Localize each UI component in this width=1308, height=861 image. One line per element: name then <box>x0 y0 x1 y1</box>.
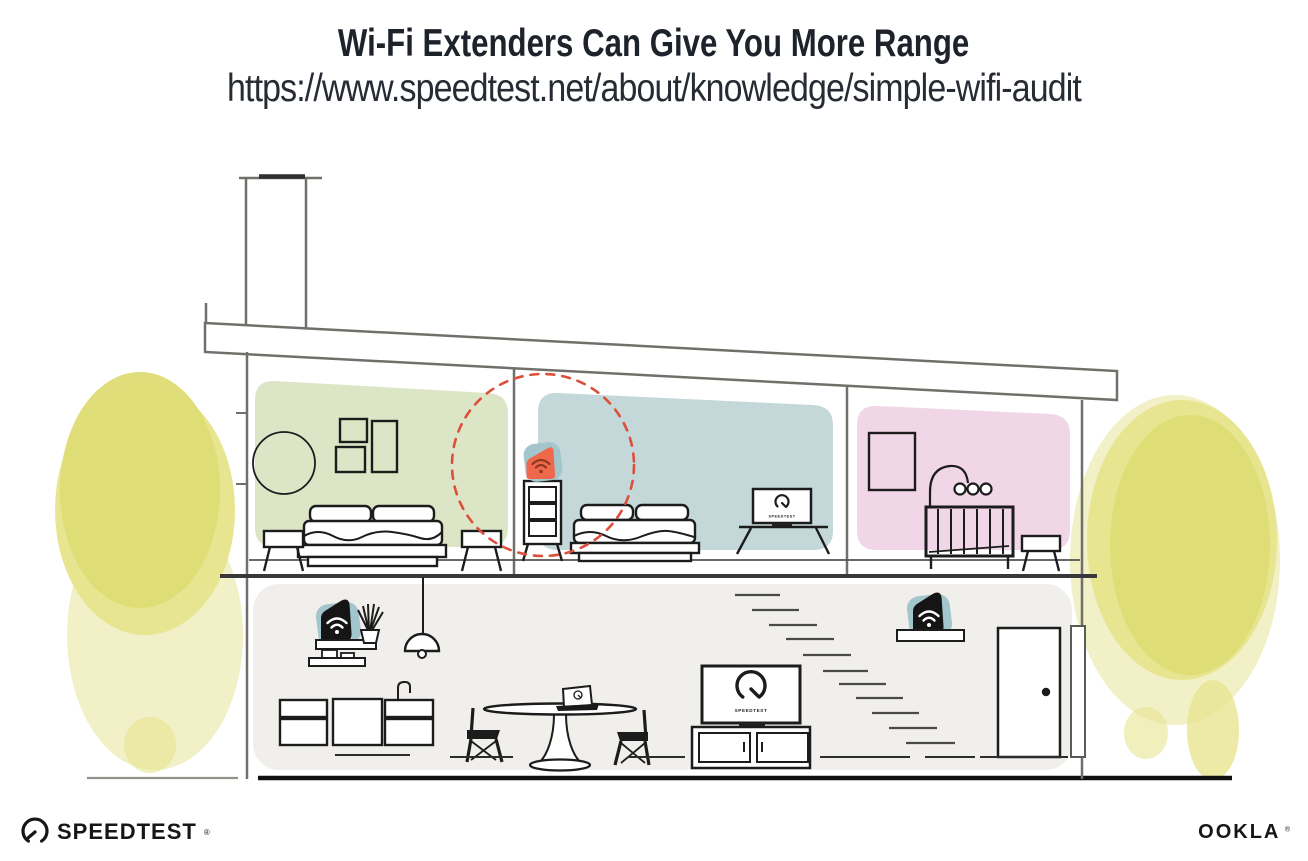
door-frame-trim <box>1071 626 1085 757</box>
speedtest-wordmark: SPEEDTEST <box>57 819 197 845</box>
tv-screen-label: SPEEDTEST <box>735 708 768 713</box>
cup <box>322 650 337 658</box>
wifi-extender-upstairs <box>522 441 563 483</box>
nightstand <box>264 531 303 571</box>
door <box>998 628 1060 757</box>
ookla-wordmark: OOKLA <box>1198 821 1280 843</box>
media-cabinet <box>692 727 810 768</box>
mobile-ball <box>981 484 992 495</box>
ookla-logo: OOKLA ® <box>1198 821 1290 844</box>
stool <box>1022 536 1060 571</box>
speedtest-logo: SPEEDTEST ® <box>20 817 210 847</box>
registered-mark: ® <box>1285 827 1290 834</box>
door-knob <box>1042 688 1050 696</box>
shelf <box>897 630 964 641</box>
chimney <box>239 177 322 337</box>
mobile-ball <box>968 484 979 495</box>
nightstand <box>462 531 501 571</box>
tree-left <box>55 372 243 773</box>
house-illustration: SPEEDTEST <box>0 0 1308 861</box>
bed <box>298 506 446 566</box>
tv-lower: SPEEDTEST <box>702 666 800 727</box>
tree-right <box>1070 395 1280 780</box>
registered-mark: ® <box>204 828 210 837</box>
mobile-ball <box>955 484 966 495</box>
tv-screen-label: SPEEDTEST <box>768 515 795 519</box>
bed <box>571 505 699 561</box>
speedtest-gauge-icon <box>20 817 50 847</box>
